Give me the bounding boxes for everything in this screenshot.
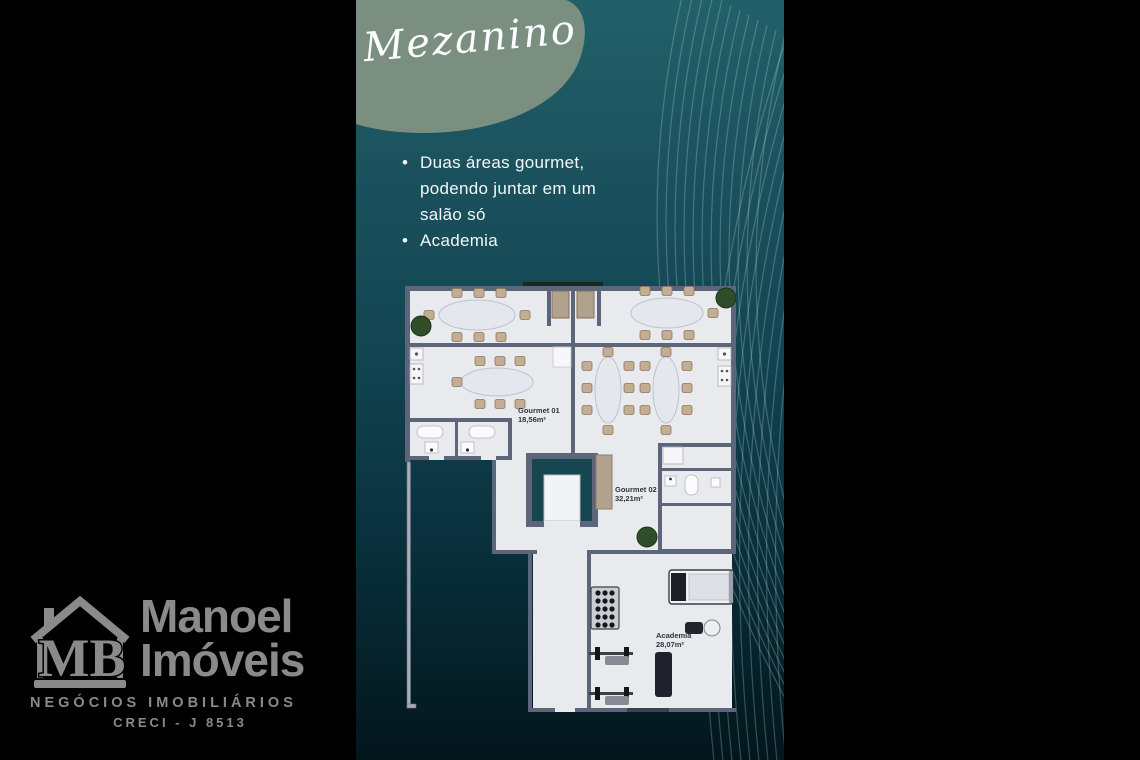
room-area: 32,21m² [615, 494, 643, 503]
right-letterbox-bar [784, 0, 1140, 760]
logo-name-line1: Manoel [140, 594, 304, 638]
teal-story-panel: Mezanino Duas áreas gourmet, podendo jun… [356, 0, 784, 760]
room-area: 28,07m² [656, 640, 684, 649]
bullet-gourmet: Duas áreas gourmet, podendo juntar em um… [400, 150, 600, 228]
feature-bullet-list: Duas áreas gourmet, podendo juntar em um… [400, 150, 600, 254]
story-slide: Mezanino Duas áreas gourmet, podendo jun… [0, 0, 1140, 760]
room-label: Gourmet 02 [615, 485, 657, 494]
agency-logo: MB Manoel Imóveis NEGÓCIOS IMOBILIÁRIOS … [30, 594, 330, 730]
logo-name-line2: Imóveis [140, 638, 304, 682]
logo-tagline: NEGÓCIOS IMOBILIÁRIOS [30, 695, 330, 711]
plant [411, 316, 431, 336]
plant [637, 527, 657, 547]
room-label: Academia [656, 631, 692, 640]
bullet-academia: Academia [400, 228, 600, 254]
logo-creci: CRECI - J 8513 [30, 715, 330, 730]
room-label: Gourmet 01 [518, 406, 560, 415]
logo-monogram: MB [39, 628, 126, 688]
logo-name: Manoel Imóveis [140, 594, 304, 682]
floor-plan: Gourmet 01 18,56m² Gourmet 02 32,2 [405, 282, 736, 713]
void-parapet-wall [407, 462, 416, 708]
room-area: 18,56m² [518, 415, 546, 424]
house-monogram-icon: MB [30, 594, 130, 688]
plant [716, 288, 736, 308]
